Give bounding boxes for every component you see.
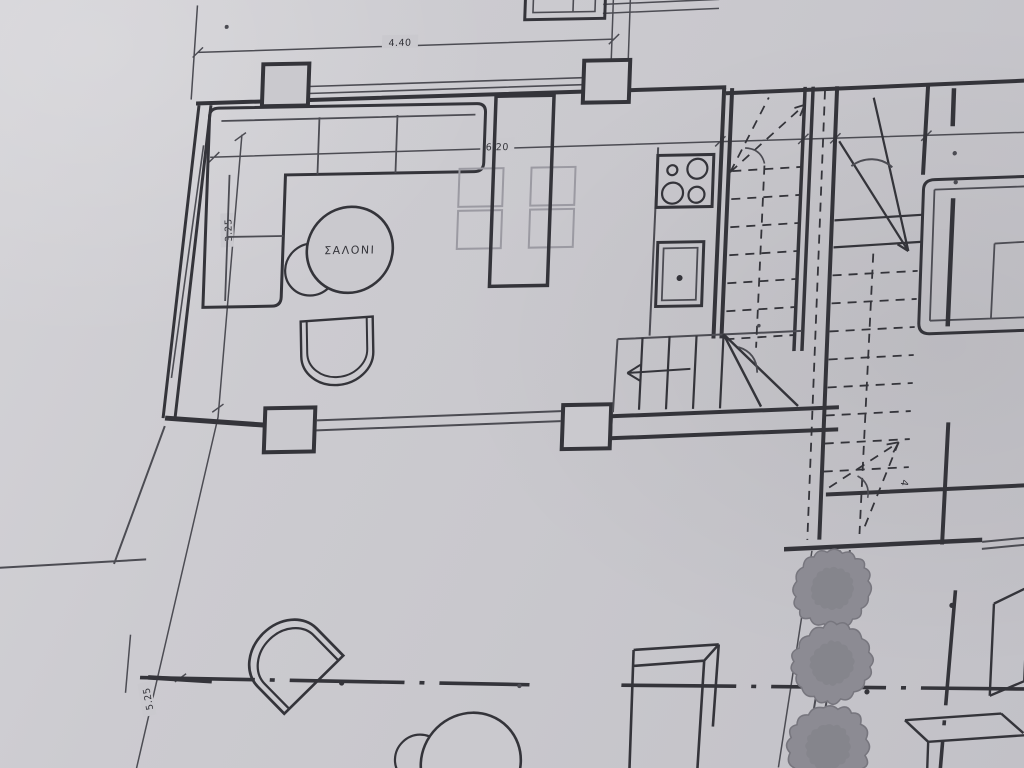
top-appliance — [525, 0, 606, 20]
terrace-box-table — [629, 644, 718, 768]
dimension-lower-525: 5.25 — [125, 633, 214, 717]
terrace-armchair — [234, 604, 343, 713]
tree-icon — [782, 699, 874, 768]
planter-trees — [772, 542, 892, 768]
tree-icon — [777, 608, 887, 719]
dimension-620 — [209, 129, 1024, 163]
coffee-tables: ΣΑΛΟΝΙ — [284, 206, 394, 296]
dimension-left-325: 3.25 — [135, 133, 246, 768]
terrace-box-right-upper — [990, 585, 1024, 696]
stairs-upper-dashed — [724, 97, 805, 348]
section-cut-bar — [946, 88, 957, 326]
salon-label: ΣΑΛΟΝΙ — [324, 243, 376, 257]
sink — [656, 242, 704, 307]
dim-440-label: 4.40 — [388, 38, 412, 49]
stairs-direction-arrow — [627, 364, 691, 381]
terrace-round-table — [393, 712, 522, 768]
right-l-sofa — [918, 87, 1024, 334]
stairs-right: 4 — [822, 97, 926, 535]
dim-325-label: 3.25 — [223, 218, 234, 242]
dining-island — [489, 95, 554, 286]
living-room-armchair — [301, 317, 374, 388]
floor-plan-photo: 4.40 3.25 5.25 — [0, 0, 1024, 768]
terrace-centerlines — [136, 589, 1024, 768]
terrace-box-right-lower — [903, 713, 1024, 768]
dim-620-label: 6.20 — [486, 142, 510, 153]
stair-number-label: 4 — [898, 479, 910, 487]
dimension-top-440: 4.40 — [193, 31, 620, 57]
stove — [656, 154, 714, 207]
plan-svg: 4.40 3.25 5.25 — [0, 0, 1024, 768]
tree-icon — [786, 543, 880, 633]
stairs-lower — [613, 331, 802, 412]
island-chairs — [457, 167, 576, 249]
